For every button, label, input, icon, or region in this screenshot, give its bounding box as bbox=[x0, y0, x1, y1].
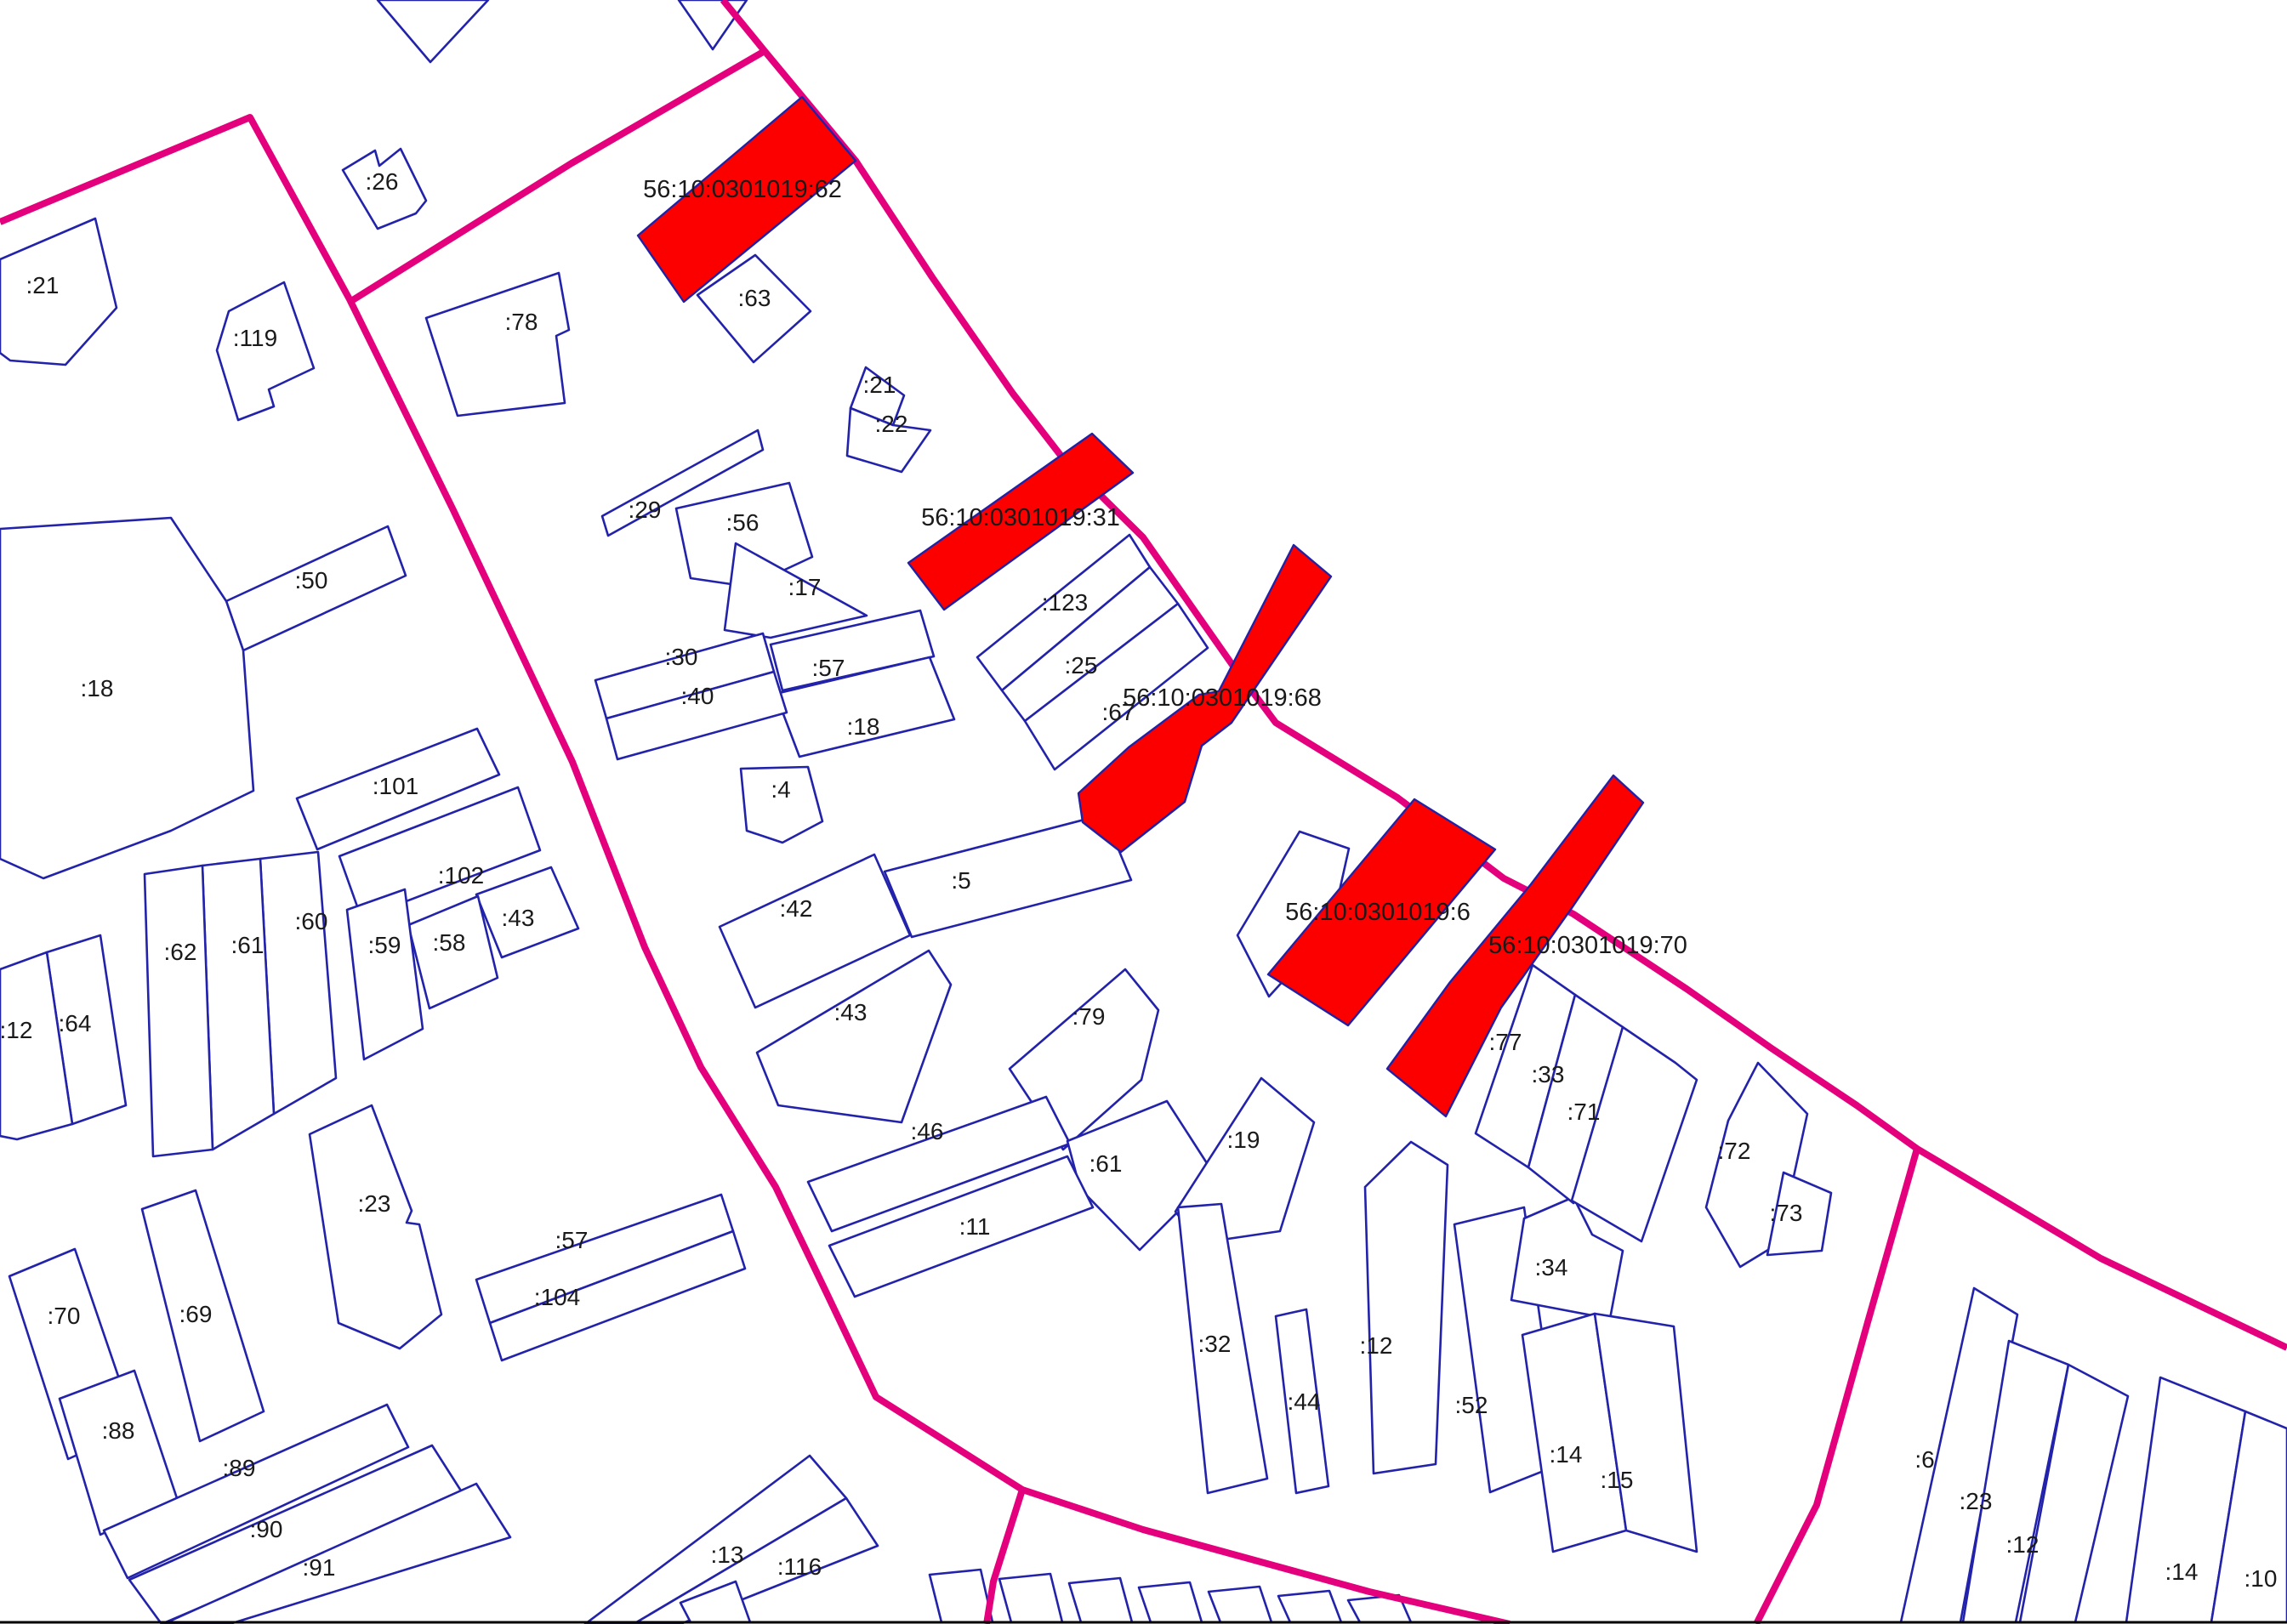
parcel-label: :57 bbox=[555, 1227, 589, 1253]
parcel-polygon[interactable] bbox=[0, 518, 253, 878]
parcel-label: :64 bbox=[59, 1010, 92, 1036]
parcel-label: :63 bbox=[738, 285, 771, 311]
parcel-label: :52 bbox=[1455, 1392, 1488, 1418]
parcel-label: :57 bbox=[812, 655, 845, 681]
parcel-label: :59 bbox=[368, 932, 401, 958]
parcel-label: :40 bbox=[681, 683, 714, 709]
parcel-label: :72 bbox=[1718, 1138, 1751, 1164]
parcel-label: :58 bbox=[433, 929, 466, 956]
parcel-label: :116 bbox=[777, 1553, 822, 1580]
parcel-label: :12 bbox=[1360, 1332, 1393, 1359]
parcel-label: :23 bbox=[358, 1190, 391, 1217]
parcel-polygon[interactable] bbox=[1139, 1582, 1202, 1622]
parcel-label: :123 bbox=[1042, 589, 1089, 616]
parcel-polygon[interactable] bbox=[885, 815, 1131, 937]
parcel-label: :71 bbox=[1567, 1099, 1601, 1125]
parcel-label: :43 bbox=[502, 905, 535, 931]
parcel-polygon[interactable] bbox=[378, 0, 488, 62]
parcel-label: :22 bbox=[875, 411, 908, 437]
parcel-label: :21 bbox=[863, 372, 896, 398]
parcel-polygon[interactable] bbox=[202, 859, 274, 1150]
parcel-label: :89 bbox=[223, 1455, 256, 1481]
parcel-polygon[interactable] bbox=[310, 1105, 441, 1349]
parcel-label: :104 bbox=[534, 1284, 581, 1310]
map-canvas[interactable]: :21:119:26:78:63:21:22:29:56:17:57:18:4:… bbox=[0, 0, 2287, 1624]
parcel-label: :12 bbox=[2006, 1531, 2040, 1558]
parcel-label: :61 bbox=[231, 932, 265, 958]
parcel-label: :102 bbox=[438, 862, 485, 889]
parcel-polygon[interactable] bbox=[999, 1574, 1062, 1622]
parcel-polygon[interactable] bbox=[1365, 1142, 1448, 1474]
parcel-label: :91 bbox=[303, 1554, 336, 1581]
parcel-label: :78 bbox=[505, 309, 538, 335]
cadastral-number-label: 56:10:0301019:68 bbox=[1123, 684, 1322, 712]
parcel-label: :50 bbox=[295, 567, 328, 593]
parcel-label: :10 bbox=[2244, 1565, 2278, 1592]
cadastral-number-label: 56:10:0301019:31 bbox=[921, 504, 1120, 531]
parcel-label: :44 bbox=[1288, 1388, 1321, 1415]
parcel-label: :70 bbox=[48, 1303, 81, 1329]
parcel-polygon[interactable] bbox=[145, 866, 213, 1156]
parcel-label: :5 bbox=[951, 867, 970, 894]
parcel-label: :56 bbox=[726, 509, 759, 536]
parcel-label: :6 bbox=[1914, 1446, 1934, 1473]
parcel-polygon[interactable] bbox=[930, 1570, 993, 1622]
parcel-polygon[interactable] bbox=[1278, 1591, 1341, 1622]
parcel-label: :25 bbox=[1065, 652, 1098, 679]
parcel-label: :69 bbox=[179, 1301, 213, 1327]
parcel-label: :79 bbox=[1072, 1003, 1106, 1030]
parcel-label: :14 bbox=[1550, 1441, 1583, 1468]
parcel-label: :61 bbox=[1089, 1150, 1123, 1177]
parcel-polygon[interactable] bbox=[679, 0, 747, 49]
parcel-label: :32 bbox=[1198, 1331, 1232, 1357]
parcel-label: :43 bbox=[834, 999, 868, 1025]
parcel-label: :23 bbox=[1960, 1488, 1993, 1514]
parcel-label: :21 bbox=[26, 272, 60, 298]
parcel-label: :60 bbox=[295, 908, 328, 934]
parcel-label: :13 bbox=[711, 1542, 744, 1568]
cadastral-number-label: 56:10:0301019:70 bbox=[1488, 932, 1687, 959]
parcel-label: :18 bbox=[81, 675, 114, 701]
parcel-label: :33 bbox=[1532, 1061, 1565, 1087]
parcel-polygon[interactable] bbox=[347, 889, 423, 1059]
cadastral-map-svg: :21:119:26:78:63:21:22:29:56:17:57:18:4:… bbox=[0, 0, 2287, 1624]
parcel-label: :30 bbox=[665, 644, 698, 670]
parcel-label: :19 bbox=[1227, 1127, 1260, 1153]
parcel-label: :90 bbox=[250, 1516, 283, 1542]
parcel-polygon[interactable] bbox=[217, 282, 314, 420]
cadastral-number-label: 56:10:0301019:6 bbox=[1285, 899, 1471, 926]
parcel-label: :88 bbox=[102, 1417, 135, 1444]
parcel-label: :26 bbox=[366, 168, 399, 195]
parcel-label: :62 bbox=[164, 939, 197, 965]
parcel-label: :17 bbox=[788, 574, 822, 600]
parcel-polygon[interactable] bbox=[426, 273, 569, 416]
parcel-polygon[interactable] bbox=[1069, 1578, 1132, 1622]
parcel-label: :34 bbox=[1535, 1254, 1568, 1280]
parcel-label: :14 bbox=[2165, 1559, 2199, 1585]
parcel-label: :42 bbox=[780, 895, 813, 922]
parcel-label: :4 bbox=[771, 776, 790, 803]
parcel-label: :119 bbox=[233, 325, 277, 351]
parcel-label: :101 bbox=[373, 773, 419, 799]
parcel-label: :77 bbox=[1489, 1029, 1522, 1055]
parcel-label: :15 bbox=[1601, 1467, 1634, 1493]
parcel-label: :12 bbox=[0, 1017, 32, 1043]
parcel-polygon[interactable] bbox=[1209, 1587, 1272, 1622]
parcel-label: :18 bbox=[847, 713, 880, 740]
parcel-label: :73 bbox=[1770, 1200, 1803, 1226]
parcel-label: :11 bbox=[959, 1213, 991, 1240]
parcel-label: :46 bbox=[911, 1118, 944, 1144]
parcel-label: :29 bbox=[629, 497, 662, 523]
cadastral-number-label: 56:10:0301019:62 bbox=[643, 176, 842, 203]
